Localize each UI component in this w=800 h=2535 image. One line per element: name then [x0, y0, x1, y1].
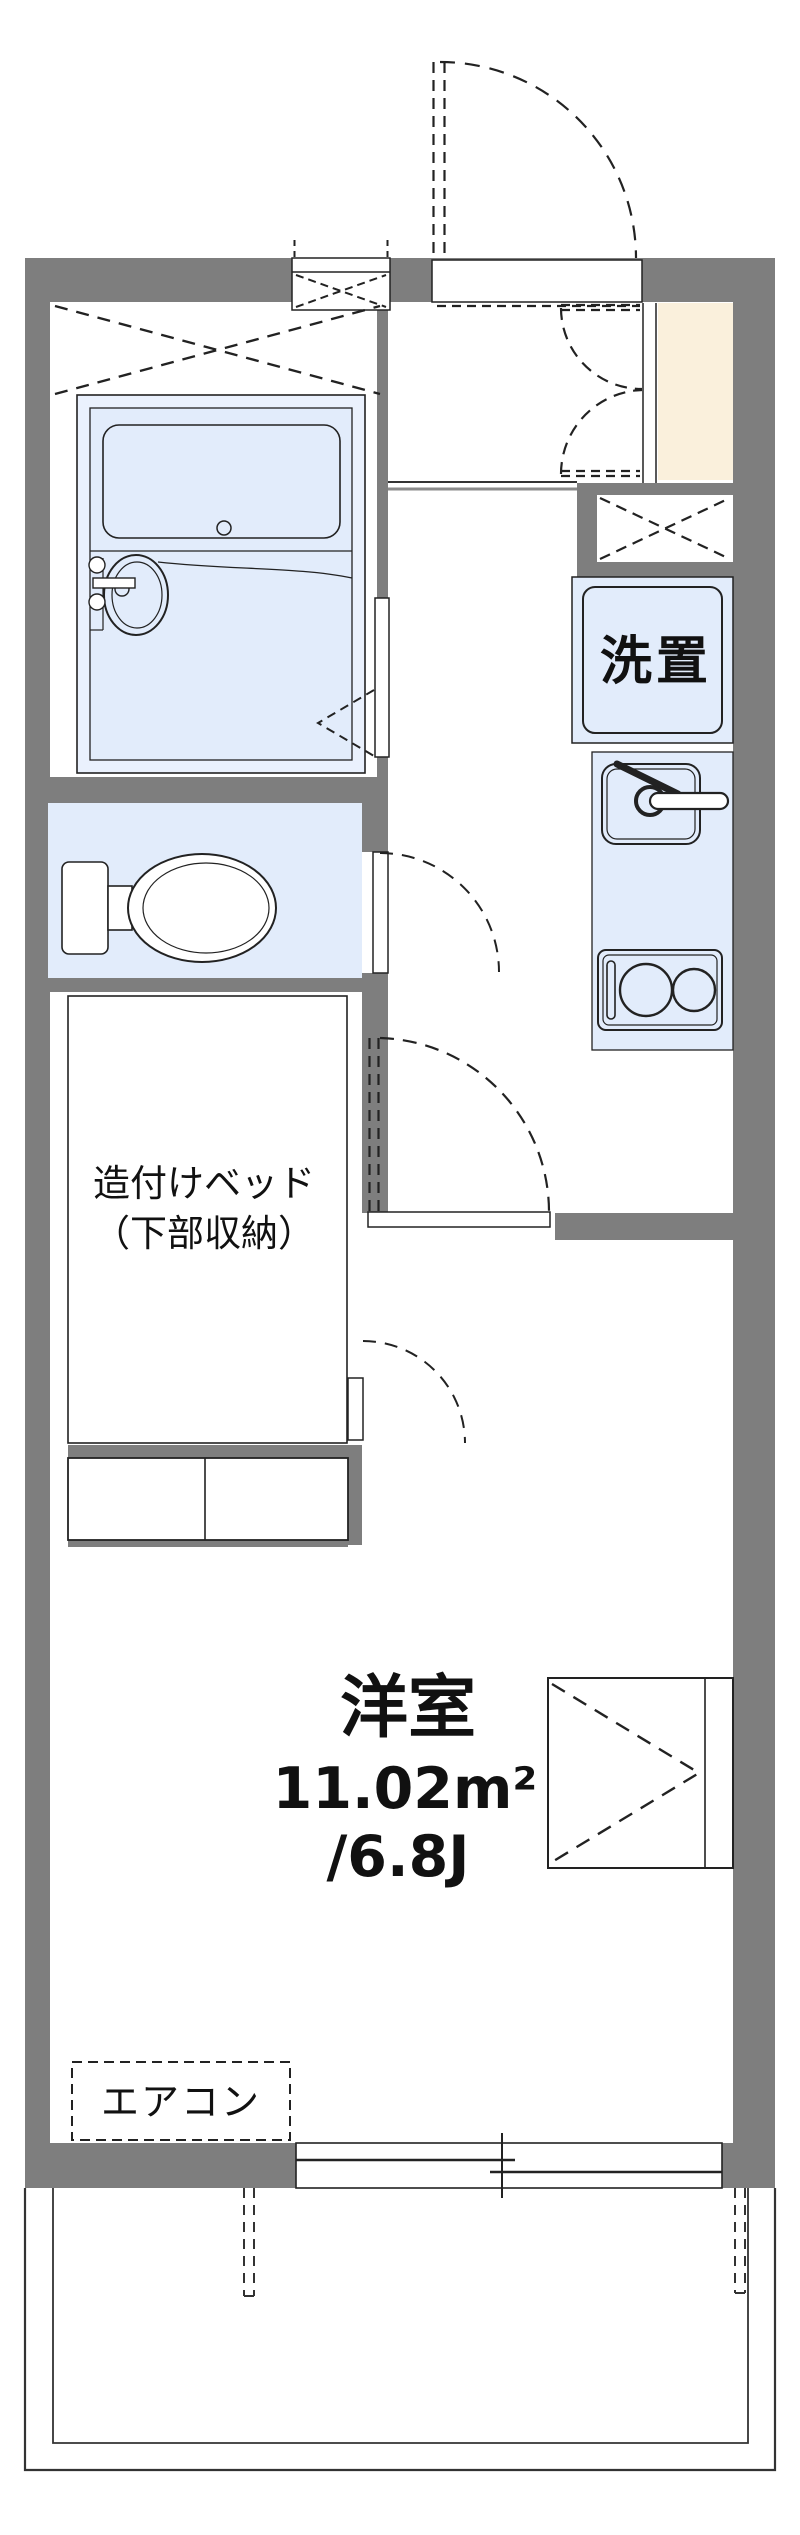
bed-shelf	[68, 1458, 348, 1540]
toilet-bowl	[62, 854, 276, 962]
sliding-window	[296, 2133, 722, 2198]
room-area-m2: 11.02m²	[273, 1756, 538, 1822]
washing-machine-space: 洗置	[572, 577, 733, 743]
air-conditioner: エアコン	[72, 2062, 290, 2140]
room-name: 洋室	[340, 1669, 476, 1748]
bed-label-line1: 造付けベッド	[93, 1162, 315, 1205]
room-area-jo: /6.8J	[326, 1824, 469, 1890]
bathtub-drain	[217, 521, 231, 535]
pipe-space	[597, 495, 733, 562]
closet	[548, 1678, 733, 1868]
unit-bath	[77, 395, 389, 773]
kitchen	[592, 752, 733, 1050]
aircon-label: エアコン	[101, 2080, 261, 2124]
entrance-doorway	[432, 260, 642, 302]
gas-stove	[598, 950, 722, 1030]
genkan-floor	[658, 303, 733, 480]
bed-label-line2: （下部収納）	[93, 1212, 315, 1255]
floor-plan: 造付けベッド （下部収納） 洗置	[0, 0, 800, 2535]
washer-label: 洗置	[600, 632, 712, 692]
